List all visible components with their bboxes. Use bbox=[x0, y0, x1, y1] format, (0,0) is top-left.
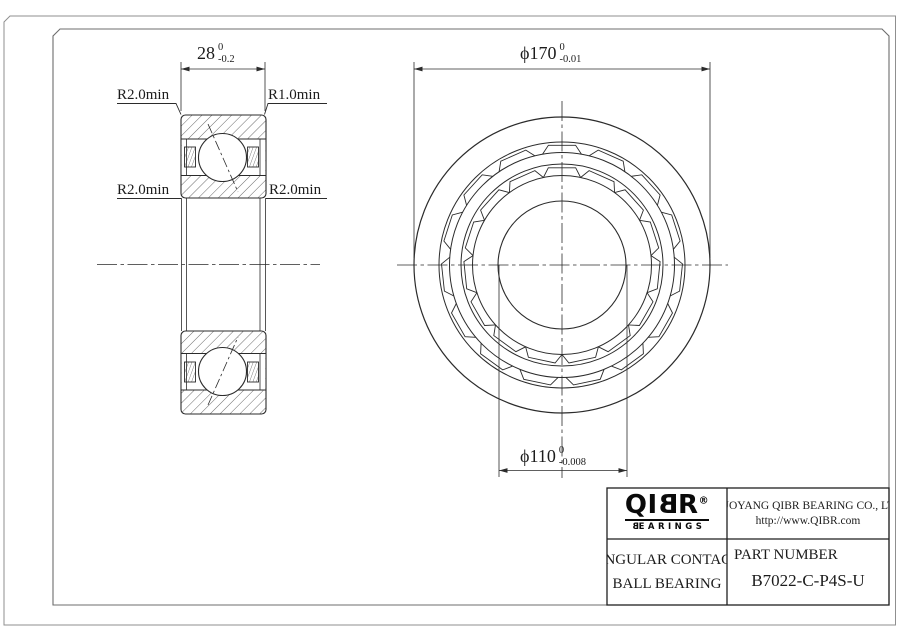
company-name: LUOYANG QIBR BEARING CO., LTD bbox=[727, 500, 889, 512]
arrow-left bbox=[181, 67, 190, 72]
registered-mark: ® bbox=[699, 495, 710, 506]
logo-bearings-text: BEARINGS bbox=[607, 522, 727, 532]
arrow-od-right bbox=[702, 67, 711, 72]
cage-section-right-bottom bbox=[248, 362, 259, 382]
fillet-label-top-left: R2.0min bbox=[117, 88, 169, 103]
fillet-label-mid-right: R2.0min bbox=[269, 183, 321, 198]
part-number-label: PART NUMBER bbox=[734, 547, 889, 564]
qibr-logo: QIBR® bbox=[607, 492, 727, 518]
company-url: http://www.QIBR.com bbox=[756, 515, 861, 527]
drawing-sheet: 28 0 -0.2 R2.0min R1.0min R2.0min R2.0mi… bbox=[0, 0, 900, 636]
width-dimension-text: 28 0 -0.2 bbox=[197, 44, 235, 65]
cage-section-right bbox=[248, 147, 259, 167]
section-bottom-block bbox=[181, 331, 266, 414]
bore-dimension-text: ϕ110 0 -0.008 bbox=[520, 447, 586, 468]
arrow-right bbox=[257, 67, 266, 72]
part-number-cell: PART NUMBER B7022-C-P4S-U bbox=[727, 539, 889, 605]
arrow-od-left bbox=[414, 67, 423, 72]
fillet-label-mid-left: R2.0min bbox=[117, 183, 169, 198]
front-view bbox=[397, 62, 728, 478]
cage-pocket bbox=[598, 325, 630, 352]
bearing-type-line1: ANGULAR CONTACT bbox=[607, 548, 727, 572]
width-dimension-lines bbox=[181, 62, 265, 111]
fillet-label-top-right: R1.0min bbox=[268, 88, 320, 103]
cage-section-left bbox=[185, 147, 196, 167]
od-dimension-text: ϕ170 0 -0.01 bbox=[520, 44, 581, 65]
arrow-bore-left bbox=[499, 468, 508, 473]
cage-pocket bbox=[494, 325, 526, 352]
section-top-block bbox=[181, 115, 266, 198]
ball-bottom bbox=[199, 348, 247, 396]
section-view bbox=[97, 62, 327, 414]
arrow-bore-right bbox=[619, 468, 628, 473]
part-number-value: B7022-C-P4S-U bbox=[727, 571, 889, 591]
logo-cell: QIBR® BEARINGS bbox=[607, 488, 727, 539]
bearing-description-cell: ANGULAR CONTACT BALL BEARING bbox=[607, 539, 727, 605]
bearing-type-line2: BALL BEARING bbox=[612, 572, 721, 596]
ball-top bbox=[199, 134, 247, 182]
company-cell: LUOYANG QIBR BEARING CO., LTD http://www… bbox=[727, 488, 889, 539]
cage-section-left-bottom bbox=[185, 362, 196, 382]
